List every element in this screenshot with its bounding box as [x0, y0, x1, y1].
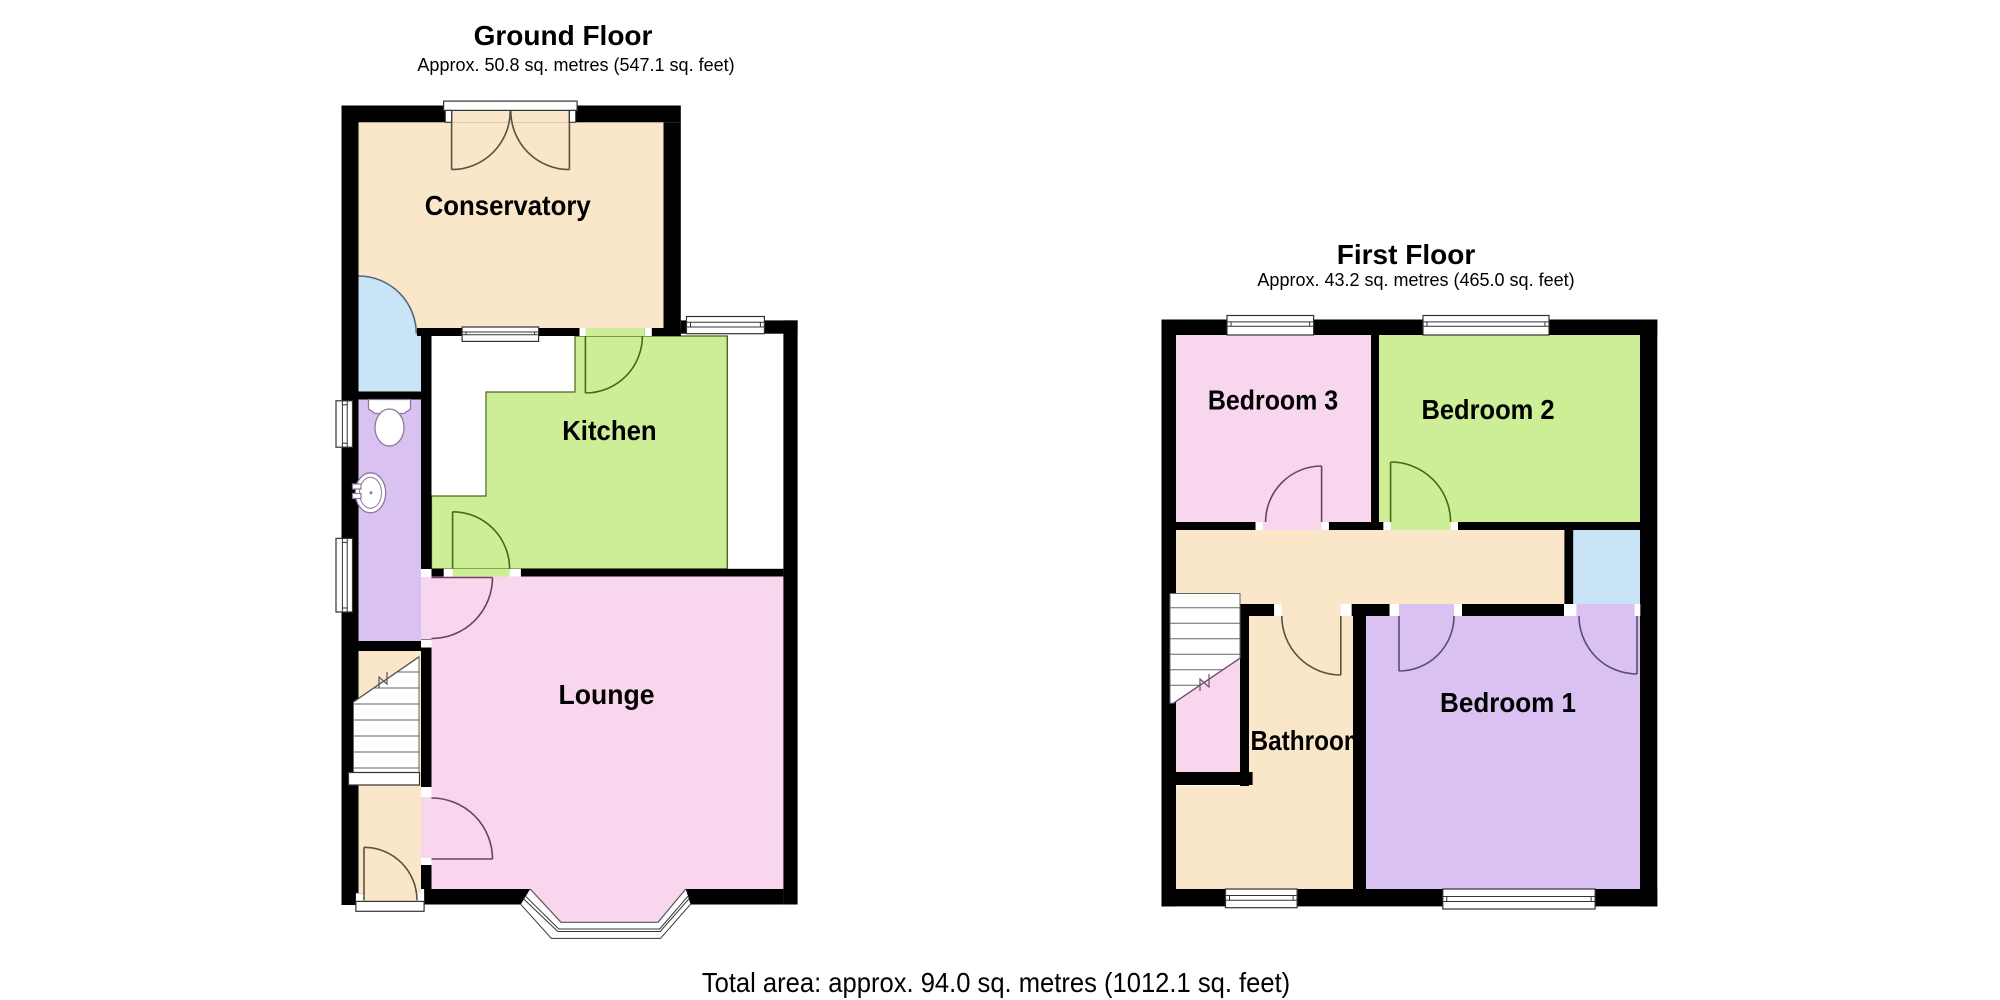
svg-text:Lounge: Lounge: [558, 678, 654, 710]
svg-text:Bathroom: Bathroom: [1250, 724, 1365, 756]
svg-text:Bedroom 2: Bedroom 2: [1421, 394, 1554, 425]
svg-text:Total area: approx. 94.0 sq. m: Total area: approx. 94.0 sq. metres (101…: [702, 967, 1290, 998]
svg-text:Approx. 43.2 sq. metres (465.0: Approx. 43.2 sq. metres (465.0 sq. feet): [1257, 270, 1574, 290]
svg-text:First Floor: First Floor: [1337, 239, 1476, 270]
svg-text:Ground Floor: Ground Floor: [474, 20, 653, 51]
svg-text:Conservatory: Conservatory: [425, 190, 591, 221]
svg-text:Approx. 50.8 sq. metres (547.1: Approx. 50.8 sq. metres (547.1 sq. feet): [417, 55, 734, 75]
svg-text:Bedroom 1: Bedroom 1: [1440, 687, 1576, 718]
svg-text:Kitchen: Kitchen: [562, 415, 656, 446]
svg-text:Bedroom 3: Bedroom 3: [1208, 384, 1338, 416]
